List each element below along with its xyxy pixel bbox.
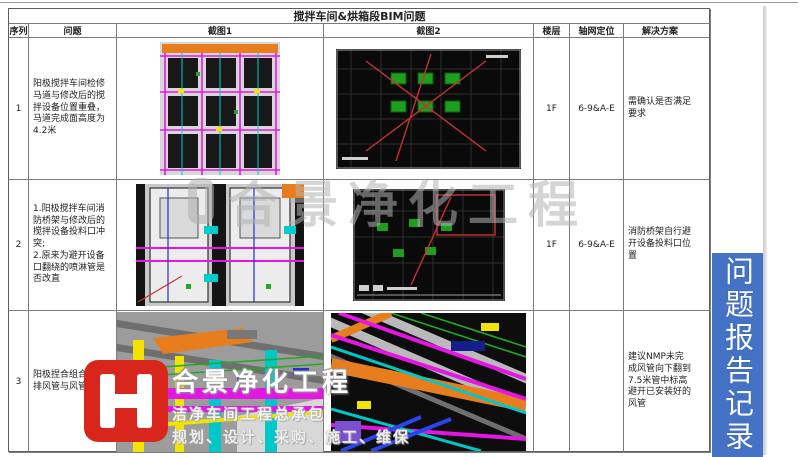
row2-problem: 1.阳极搅拌车间消防桥架与修改后的搅拌设备投料口冲突; 2.原来为避开设备口翻绕… xyxy=(29,180,117,311)
row1-screenshot2 xyxy=(324,38,534,180)
cad-plan-thumbnail xyxy=(160,42,280,175)
row3-seq: 3 xyxy=(9,311,29,453)
cad-dark-plan2-thumbnail xyxy=(353,189,505,301)
row2-screenshot1 xyxy=(117,180,324,311)
row2-floor: 1F xyxy=(534,180,570,311)
header-shot1: 截图1 xyxy=(117,24,324,38)
company-tagline: 洁净车间工程总承包 xyxy=(172,403,410,424)
row3-floor xyxy=(534,311,570,453)
row1-seq: 1 xyxy=(9,38,29,180)
cad-dark-plan-thumbnail xyxy=(336,49,521,169)
row2-seq: 2 xyxy=(9,180,29,311)
row2-axis: 6-9&A-E xyxy=(570,180,624,311)
row3-solution: 建议NMP未完成风管向下翻到7.5米管中标高 避开已安装好的风管 xyxy=(624,311,696,453)
row2-solution: 消防桥架自行避开设备投料口位置 xyxy=(624,180,696,311)
row1-empty xyxy=(696,38,711,180)
row3-axis xyxy=(570,311,624,453)
header-shot2: 截图2 xyxy=(324,24,534,38)
header-axis: 轴网定位 xyxy=(570,24,624,38)
row2-screenshot2 xyxy=(324,180,534,311)
company-name: 合景净化工程 xyxy=(172,362,410,399)
company-brand-text: 合景净化工程 洁净车间工程总承包 规划、设计、采购、施工、维保 xyxy=(172,362,410,447)
company-services: 规划、设计、采购、施工、维保 xyxy=(172,426,410,447)
header-seq: 序列 xyxy=(9,24,29,38)
row1-floor: 1F xyxy=(534,38,570,180)
header-empty xyxy=(696,24,711,38)
row3-empty xyxy=(696,311,711,453)
row1-screenshot1 xyxy=(117,38,324,180)
problem-report-banner: 问题报告记录 xyxy=(712,253,763,457)
header-floor: 楼层 xyxy=(534,24,570,38)
header-problem: 问题 xyxy=(29,24,117,38)
problem-report-page: 搅拌车间&烘箱段BIM问题 序列 问题 截图1 截图2 楼层 轴网定位 解决方案… xyxy=(0,0,800,457)
row1-solution: 需确认是否满足要求 xyxy=(624,38,696,180)
slide-top-border xyxy=(0,2,798,3)
slide-right-shadow xyxy=(763,6,767,455)
cad-elevation-thumbnail xyxy=(136,184,304,306)
header-solution: 解决方案 xyxy=(624,24,696,38)
table-title: 搅拌车间&烘箱段BIM问题 xyxy=(9,9,711,24)
row1-problem: 阳极搅拌车间检修马道与修改后的搅拌设备位置重叠，马道完成面高度为4.2米 xyxy=(29,38,117,180)
company-brand-block: 合景净化工程 洁净车间工程总承包 规划、设计、采购、施工、维保 xyxy=(84,360,410,447)
row1-axis: 6-9&A-E xyxy=(570,38,624,180)
banner-text: 问题报告记录 xyxy=(717,256,759,454)
company-logo-icon xyxy=(84,360,168,442)
logo-shape xyxy=(108,394,144,408)
row2-empty xyxy=(696,180,711,311)
